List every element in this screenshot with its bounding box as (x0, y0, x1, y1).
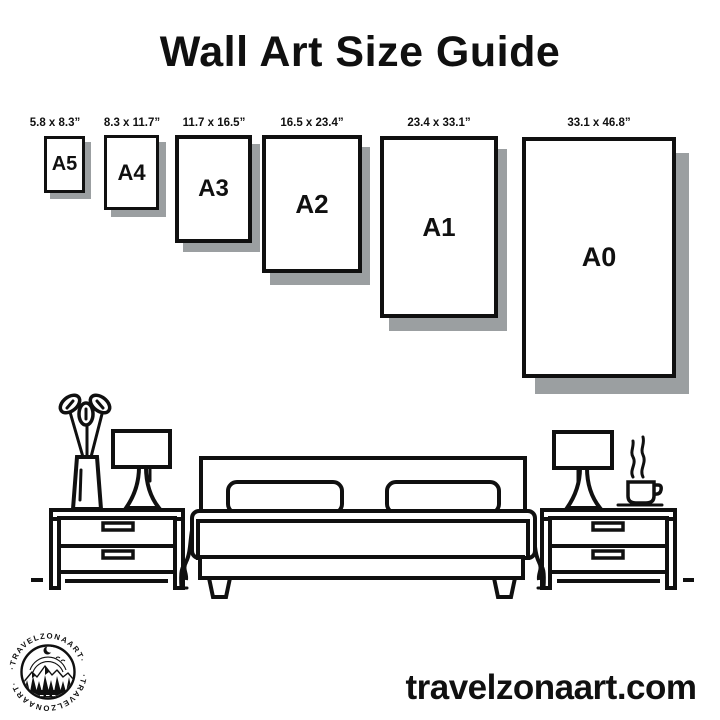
size-code-a2: A2 (295, 189, 328, 220)
size-label-a2: 16.5 x 23.4” (262, 116, 362, 131)
drawer-handle (593, 523, 623, 530)
size-code-a4: A4 (117, 160, 145, 186)
size-frame-a4: A4 (104, 135, 159, 210)
drawer-handle (103, 523, 133, 530)
size-frame-a3: A3 (175, 135, 252, 243)
nightstand-right (542, 510, 675, 588)
bed-rail (200, 557, 523, 578)
pillow (387, 482, 499, 513)
size-code-a0: A0 (582, 242, 617, 273)
wall-art-size-guide-poster: Wall Art Size Guide 5.8 x 8.3” 8.3 x 11.… (0, 0, 720, 720)
website-url: travelzonaart.com (401, 668, 701, 708)
double-bed-icon (181, 458, 545, 597)
table-lamp-right-icon (554, 432, 612, 508)
size-frame-a5: A5 (44, 136, 85, 193)
nightstand-left (51, 510, 183, 588)
potted-plant-icon (57, 392, 113, 509)
size-label-a3: 11.7 x 16.5” (164, 116, 264, 131)
table-lamp-left-icon (113, 431, 170, 508)
coffee-cup-icon (618, 437, 662, 505)
drawer-handle (593, 551, 623, 558)
size-frame-a0: A0 (522, 137, 676, 378)
page-title: Wall Art Size Guide (0, 28, 720, 77)
brand-logo: ·TRAVELZONAART· ·TRAVELZONAART· (6, 630, 90, 714)
bed-leg (209, 578, 230, 597)
size-label-a1: 23.4 x 33.1” (389, 116, 489, 131)
drawer-handle (103, 551, 133, 558)
size-code-a5: A5 (52, 153, 78, 176)
size-code-a1: A1 (422, 212, 455, 243)
size-frame-a2: A2 (262, 135, 362, 273)
pillow (228, 482, 342, 513)
size-code-a3: A3 (198, 175, 229, 203)
size-label-a0: 33.1 x 46.8” (549, 116, 649, 131)
bedroom-illustration (0, 380, 720, 610)
mattress (198, 521, 528, 558)
bed-leg (494, 578, 515, 597)
size-frame-a1: A1 (380, 136, 498, 318)
